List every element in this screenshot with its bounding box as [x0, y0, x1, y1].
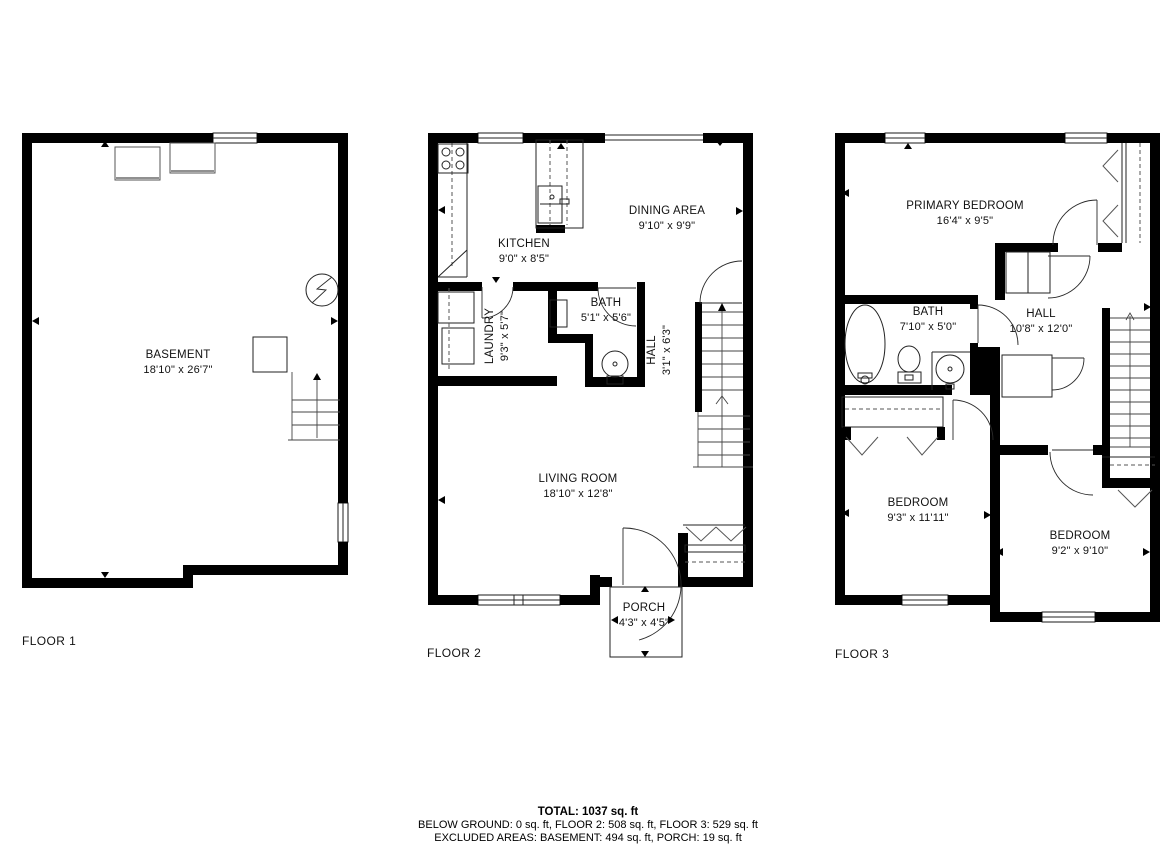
room-label-bedroom-left: BEDROOM 9'3" x 11'11" — [887, 496, 948, 526]
closet-hangers-icon — [1118, 490, 1152, 507]
room-name: BEDROOM — [1050, 530, 1111, 542]
room-label-porch: PORCH 4'3" x 4'5" — [619, 601, 669, 631]
room-label-hall-3: HALL 10'8" x 12'0" — [1010, 307, 1073, 337]
room-label-dining-area: DINING AREA 9'10" x 9'9" — [629, 204, 705, 234]
door-arc-icon — [700, 261, 742, 303]
floorplan-canvas: BASEMENT 18'10" x 26'7" KITCHEN 9'0" x 8… — [0, 0, 1176, 860]
floor-2-porch — [610, 528, 682, 657]
room-dims: 18'10" x 26'7" — [143, 364, 212, 376]
stove-icon — [438, 144, 468, 173]
floorplan-drawing — [0, 0, 1176, 860]
floor-3-bedroom-left — [842, 397, 993, 455]
floor-areas-text: BELOW GROUND: 0 sq. ft, FLOOR 2: 508 sq.… — [0, 819, 1176, 832]
excluded-areas-text: EXCLUDED AREAS: BASEMENT: 494 sq. ft, PO… — [0, 832, 1176, 845]
door-arc-icon — [1048, 256, 1090, 298]
closet-hangers-icon — [716, 527, 746, 541]
washer-icon — [438, 292, 474, 323]
room-name: BATH — [591, 297, 622, 309]
room-name: PRIMARY BEDROOM — [906, 200, 1024, 212]
room-dims: 7'10" x 5'0" — [900, 321, 957, 333]
room-dims: 3'1" x 6'3" — [661, 325, 673, 375]
room-name: HALL — [1026, 308, 1056, 320]
door-arc-icon — [953, 400, 993, 440]
room-label-hall-2: HALL 3'1" x 6'3" — [645, 325, 675, 375]
utility-box-icon — [253, 337, 287, 372]
linen-closet-icon — [1002, 355, 1052, 397]
room-dims: 9'2" x 9'10" — [1052, 545, 1109, 557]
room-dims: 4'3" x 4'5" — [619, 617, 669, 629]
room-label-bath-2: BATH 5'1" x 5'6" — [581, 296, 631, 326]
toilet-icon — [602, 351, 628, 377]
room-name: BEDROOM — [888, 497, 949, 509]
room-name: BATH — [913, 306, 944, 318]
closet-hangers-icon — [686, 527, 716, 541]
room-label-bedroom-right: BEDROOM 9'2" x 9'10" — [1050, 529, 1111, 559]
room-name: BASEMENT — [146, 349, 211, 361]
room-dims: 16'4" x 9'5" — [937, 215, 994, 227]
room-dims: 9'3" x 11'11" — [887, 512, 948, 524]
room-dims: 18'10" x 12'8" — [543, 488, 612, 500]
door-arc-icon — [1052, 358, 1084, 390]
room-label-basement: BASEMENT 18'10" x 26'7" — [143, 348, 212, 378]
floor-1-fixtures — [115, 143, 338, 372]
bathtub-icon — [845, 305, 885, 383]
area-summary: TOTAL: 1037 sq. ft BELOW GROUND: 0 sq. f… — [0, 806, 1176, 845]
room-name: DINING AREA — [629, 205, 705, 217]
closet-shelf-icon — [842, 397, 943, 427]
room-label-kitchen: KITCHEN 9'0" x 8'5" — [498, 237, 550, 267]
toilet-icon — [898, 346, 920, 372]
floor-2-closet — [683, 525, 746, 562]
room-name: KITCHEN — [498, 238, 550, 250]
room-name: LAUNDRY — [484, 308, 496, 364]
room-label-bath-3: BATH 7'10" x 5'0" — [900, 305, 957, 335]
room-dims: 9'0" x 8'5" — [499, 253, 549, 265]
door-arc-icon — [1050, 452, 1093, 495]
room-dims: 9'3" x 5'7" — [499, 311, 511, 361]
floor-1-stairs — [288, 372, 340, 440]
dryer-icon — [442, 328, 474, 364]
storage-box-icon — [170, 143, 215, 173]
door-arc-icon — [1053, 200, 1097, 245]
storage-box-icon — [115, 147, 160, 180]
floor-1-label: FLOOR 1 — [22, 634, 76, 648]
room-dims: 10'8" x 12'0" — [1010, 323, 1073, 335]
room-label-primary-bedroom: PRIMARY BEDROOM 16'4" x 9'5" — [906, 199, 1024, 229]
closet-hangers-icon — [1103, 150, 1118, 182]
room-label-living-room: LIVING ROOM 18'10" x 12'8" — [539, 472, 618, 502]
room-label-laundry: LAUNDRY 9'3" x 5'7" — [483, 308, 513, 364]
floor-3-primary-door — [1053, 200, 1097, 245]
floor-3-primary-closet — [1103, 143, 1140, 243]
total-area-text: TOTAL: 1037 sq. ft — [0, 806, 1176, 819]
closet-hangers-icon — [1103, 205, 1118, 237]
room-name: HALL — [646, 335, 658, 365]
room-name: PORCH — [623, 602, 666, 614]
room-name: LIVING ROOM — [539, 473, 618, 485]
room-dims: 5'1" x 5'6" — [581, 312, 631, 324]
floor-2-label: FLOOR 2 — [427, 646, 481, 660]
kitchen-island-icon — [536, 140, 583, 228]
sink-icon — [936, 355, 964, 383]
closet-hangers-icon — [907, 437, 938, 455]
floor-3-label: FLOOR 3 — [835, 647, 889, 661]
floor-3-stairs — [1110, 313, 1150, 447]
room-dims: 9'10" x 9'9" — [639, 220, 696, 232]
closet-shelf-icon — [685, 545, 745, 552]
